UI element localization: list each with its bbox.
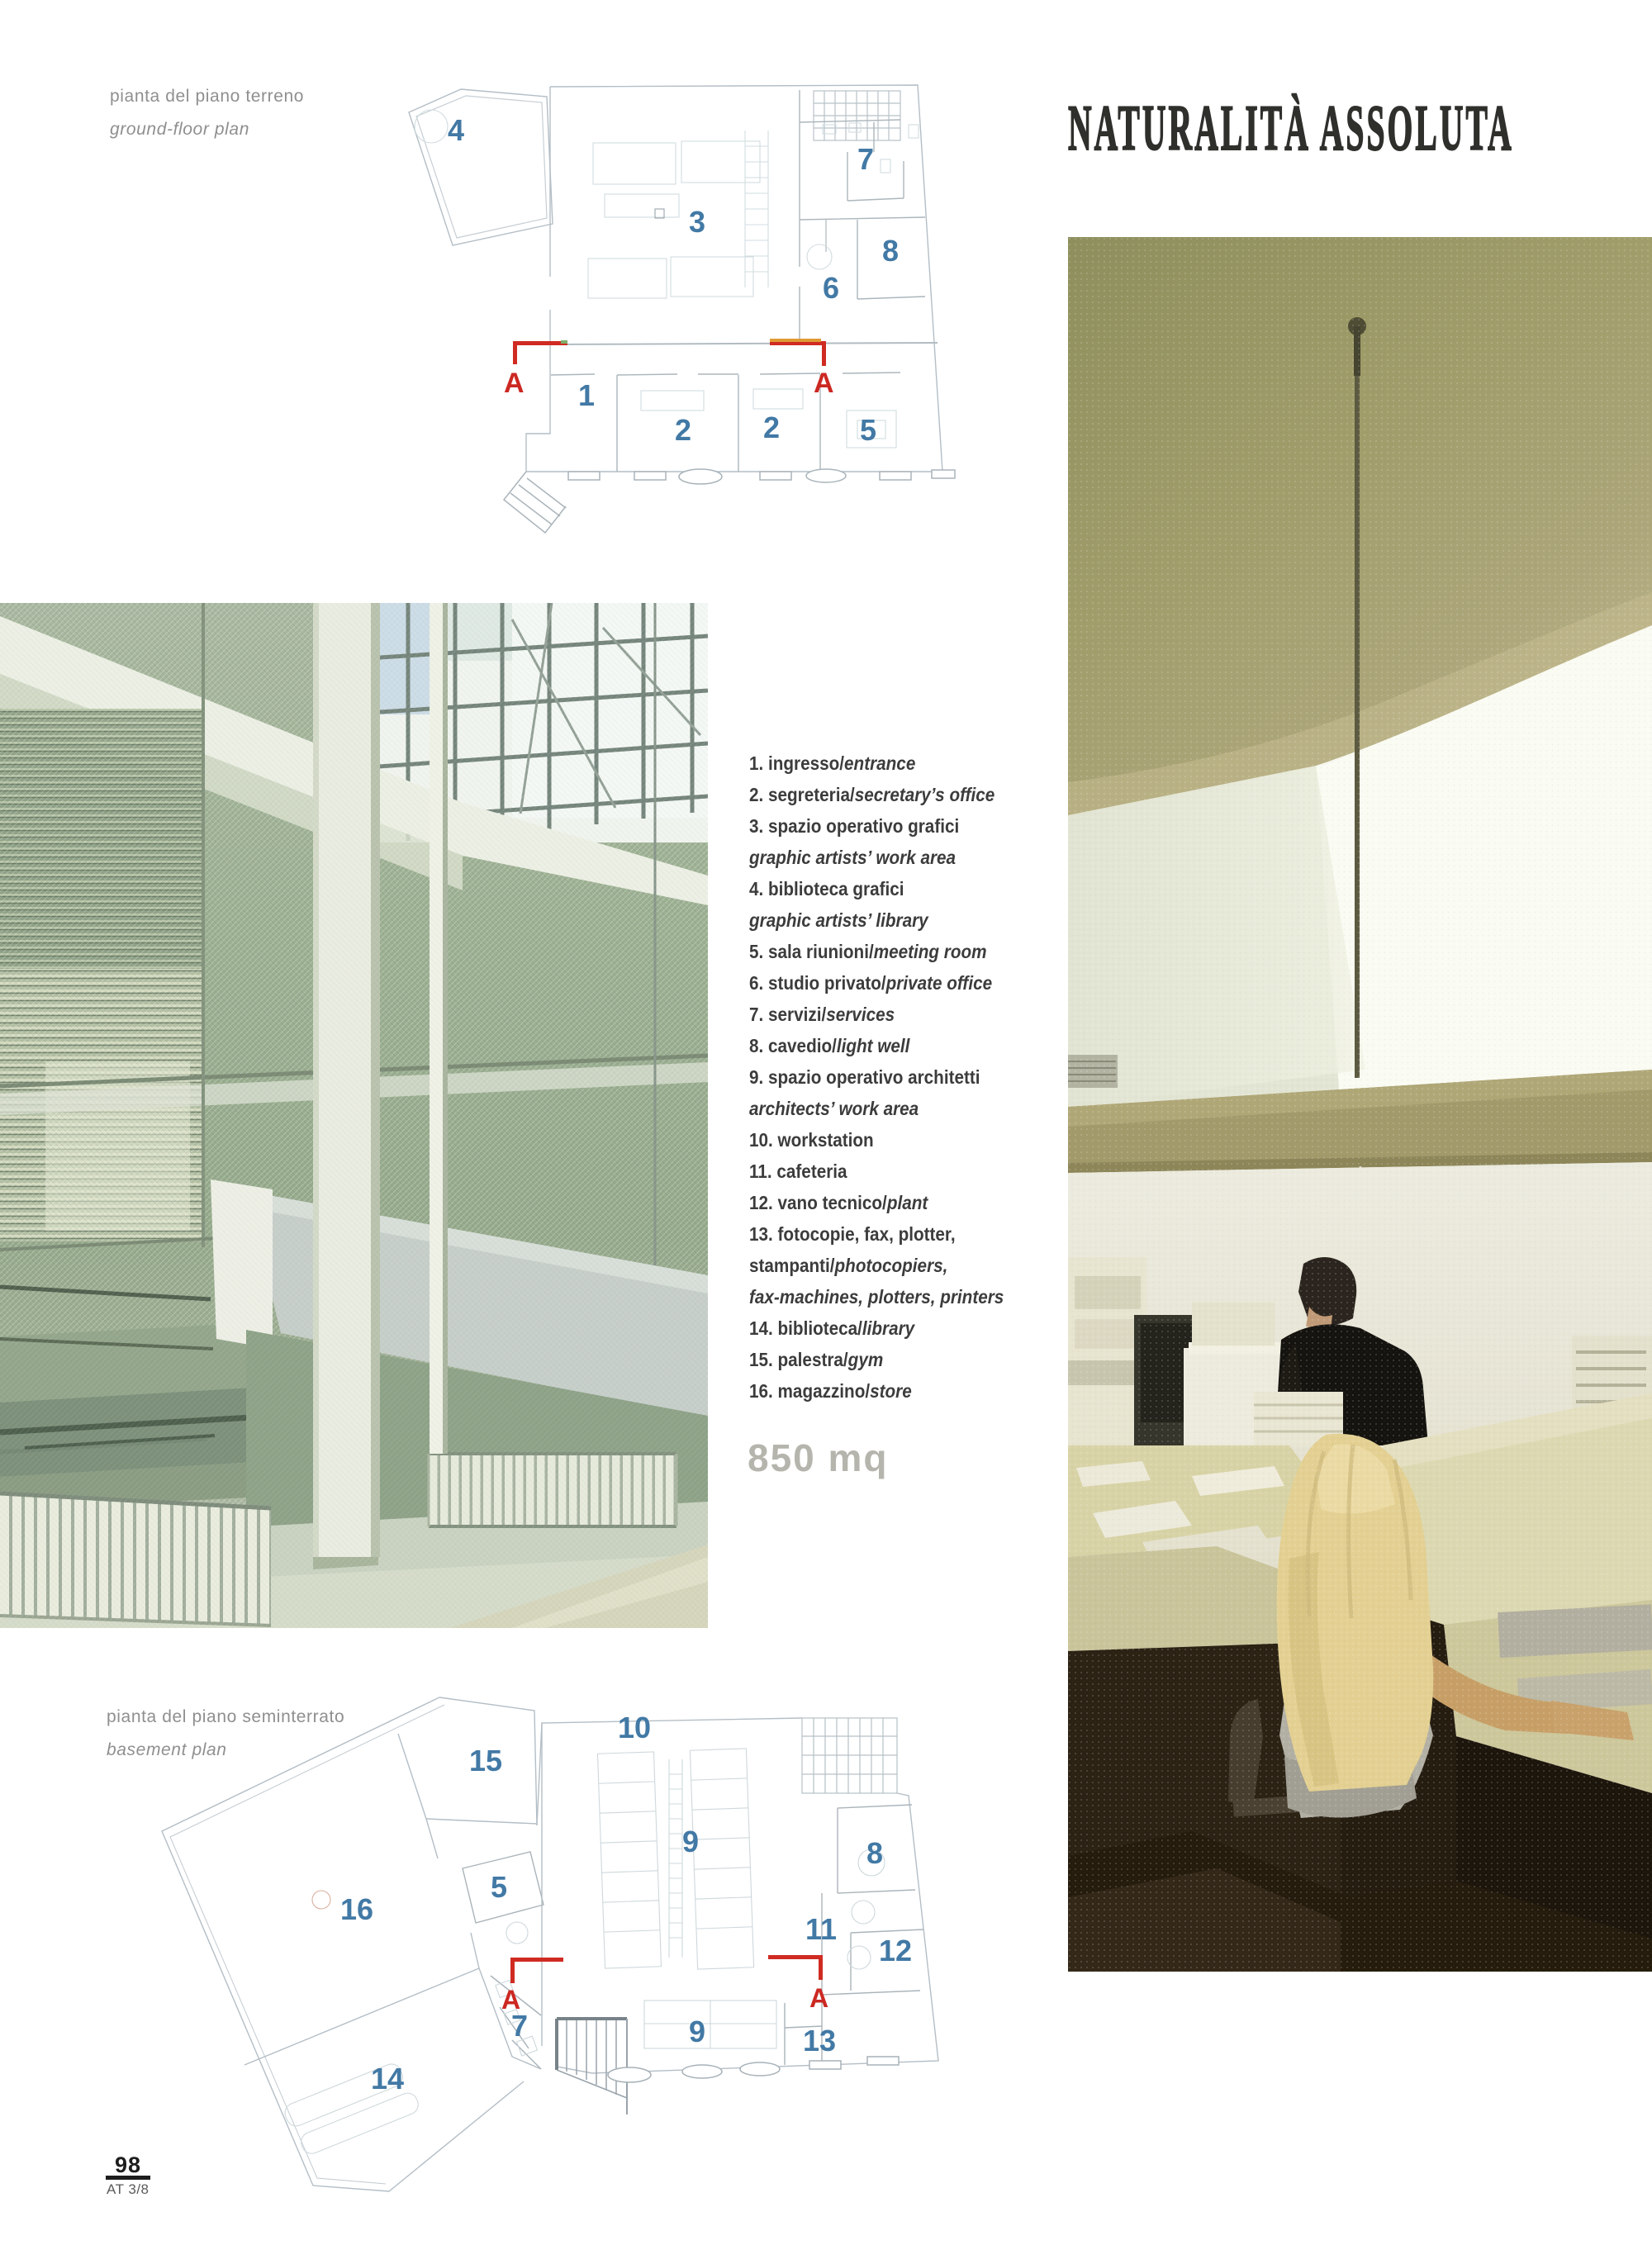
svg-text:11: 11	[805, 1912, 837, 1946]
svg-text:3: 3	[689, 205, 705, 239]
svg-text:A: A	[814, 368, 834, 399]
svg-text:5: 5	[860, 413, 876, 447]
svg-text:9: 9	[689, 2015, 705, 2048]
svg-text:2: 2	[675, 413, 691, 447]
svg-text:4: 4	[448, 113, 464, 147]
svg-text:A: A	[504, 368, 525, 399]
svg-text:5: 5	[491, 1870, 507, 1904]
svg-text:14: 14	[371, 2062, 404, 2095]
svg-text:2: 2	[763, 411, 780, 444]
svg-text:7: 7	[511, 2009, 528, 2043]
svg-text:6: 6	[823, 271, 839, 305]
svg-text:10: 10	[618, 1711, 651, 1744]
svg-text:8: 8	[882, 234, 899, 268]
svg-text:9: 9	[682, 1825, 699, 1858]
svg-text:8: 8	[866, 1836, 883, 1870]
svg-text:15: 15	[469, 1744, 502, 1777]
svg-text:A: A	[809, 1983, 828, 2013]
svg-text:7: 7	[857, 142, 874, 176]
svg-text:1: 1	[578, 378, 595, 412]
svg-text:16: 16	[340, 1892, 373, 1926]
svg-text:12: 12	[879, 1934, 912, 1967]
svg-text:13: 13	[803, 2024, 836, 2058]
